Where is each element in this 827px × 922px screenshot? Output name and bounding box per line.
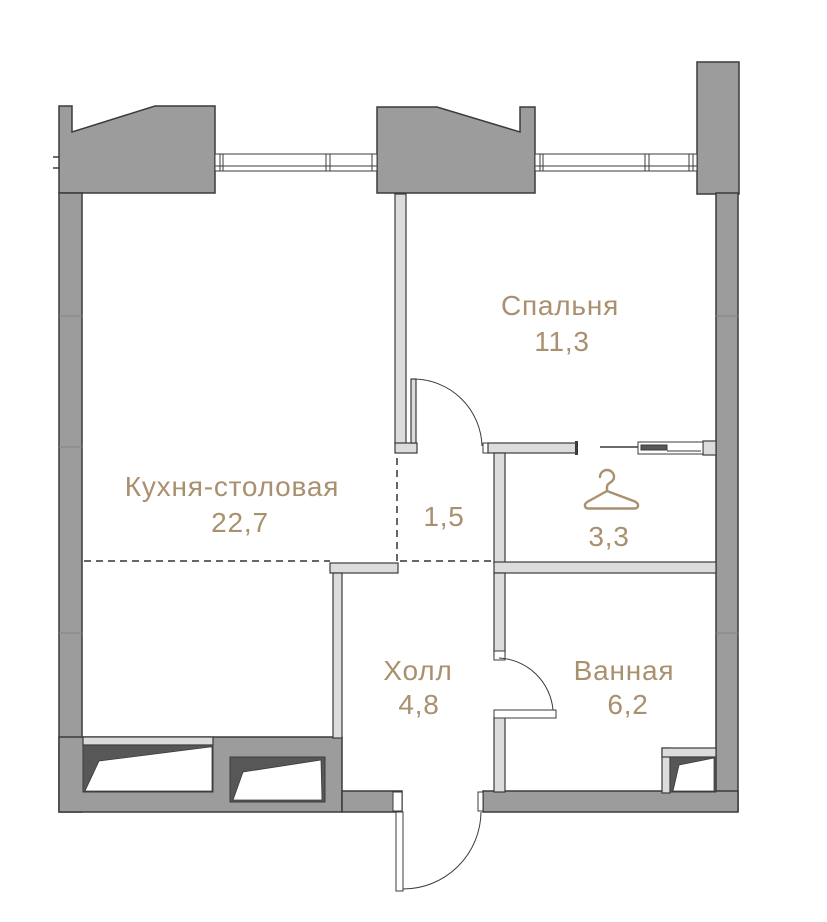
wall-kitchen-hall-horizontal bbox=[330, 563, 398, 573]
door-jamb bbox=[483, 443, 488, 453]
wall-bedroom-south bbox=[488, 443, 577, 453]
room-label-hall-area: 4,8 bbox=[398, 689, 439, 720]
bedroom-door-leaf bbox=[411, 379, 416, 443]
room-label-bedroom-area: 11,3 bbox=[534, 326, 590, 357]
wall-wardrobe-bathroom bbox=[494, 562, 716, 573]
room-label-bathroom-area: 6,2 bbox=[607, 689, 648, 720]
partition-walls bbox=[330, 194, 716, 792]
floor-plan-page: Спальня 11,3 Кухня-столовая 22,7 1,5 3,3… bbox=[0, 0, 827, 922]
niche-wall-horizontal bbox=[662, 748, 716, 757]
wall-corridor-wardrobe bbox=[494, 453, 505, 563]
entrance-door-jamb bbox=[478, 792, 483, 811]
hanger-icon bbox=[585, 470, 638, 509]
room-label-corridor-area: 1,5 bbox=[423, 501, 464, 532]
room-label-wardrobe-area: 3,3 bbox=[588, 521, 629, 552]
wall-hall-bathroom-upper bbox=[494, 573, 505, 656]
wall-bottom-right bbox=[483, 791, 738, 812]
entrance-door-leaf bbox=[396, 812, 403, 891]
room-label-kitchen-area: 22,7 bbox=[211, 507, 269, 538]
bathroom-door-leaf bbox=[494, 710, 556, 718]
corner-block-top-right bbox=[697, 62, 739, 194]
bay-block-middle bbox=[377, 107, 535, 193]
wall-kitchen-bedroom bbox=[395, 194, 406, 444]
bedroom-door-swing-arc bbox=[413, 379, 482, 446]
room-label-bathroom-name: Ванная bbox=[574, 655, 675, 686]
room-label-bedroom-name: Спальня bbox=[501, 290, 619, 321]
entrance-door-swing-arc bbox=[403, 812, 481, 889]
window-bedroom bbox=[535, 154, 697, 171]
room-label-hall-name: Холл bbox=[383, 655, 452, 686]
doors bbox=[393, 379, 703, 891]
bathroom-niche bbox=[662, 748, 716, 793]
window-sill bbox=[83, 737, 213, 745]
floor-plan: Спальня 11,3 Кухня-столовая 22,7 1,5 3,3… bbox=[0, 0, 827, 922]
bay-block-left bbox=[59, 106, 215, 193]
wall-kitchen-hall-vertical bbox=[333, 573, 342, 738]
wall-cap-bedroom-door bbox=[395, 443, 417, 453]
bathroom-door-swing-arc bbox=[499, 658, 553, 710]
sliding-door-panel-inner bbox=[641, 445, 667, 450]
wall-right bbox=[716, 193, 738, 811]
wall-hall-bathroom-lower bbox=[494, 717, 505, 792]
sliding-door-jamb bbox=[703, 441, 716, 455]
wall-end-cap bbox=[575, 441, 578, 455]
room-label-kitchen-name: Кухня-столовая bbox=[125, 471, 339, 502]
wall-left bbox=[59, 193, 82, 812]
window-kitchen bbox=[215, 154, 377, 171]
entrance-door-jamb bbox=[393, 792, 402, 811]
